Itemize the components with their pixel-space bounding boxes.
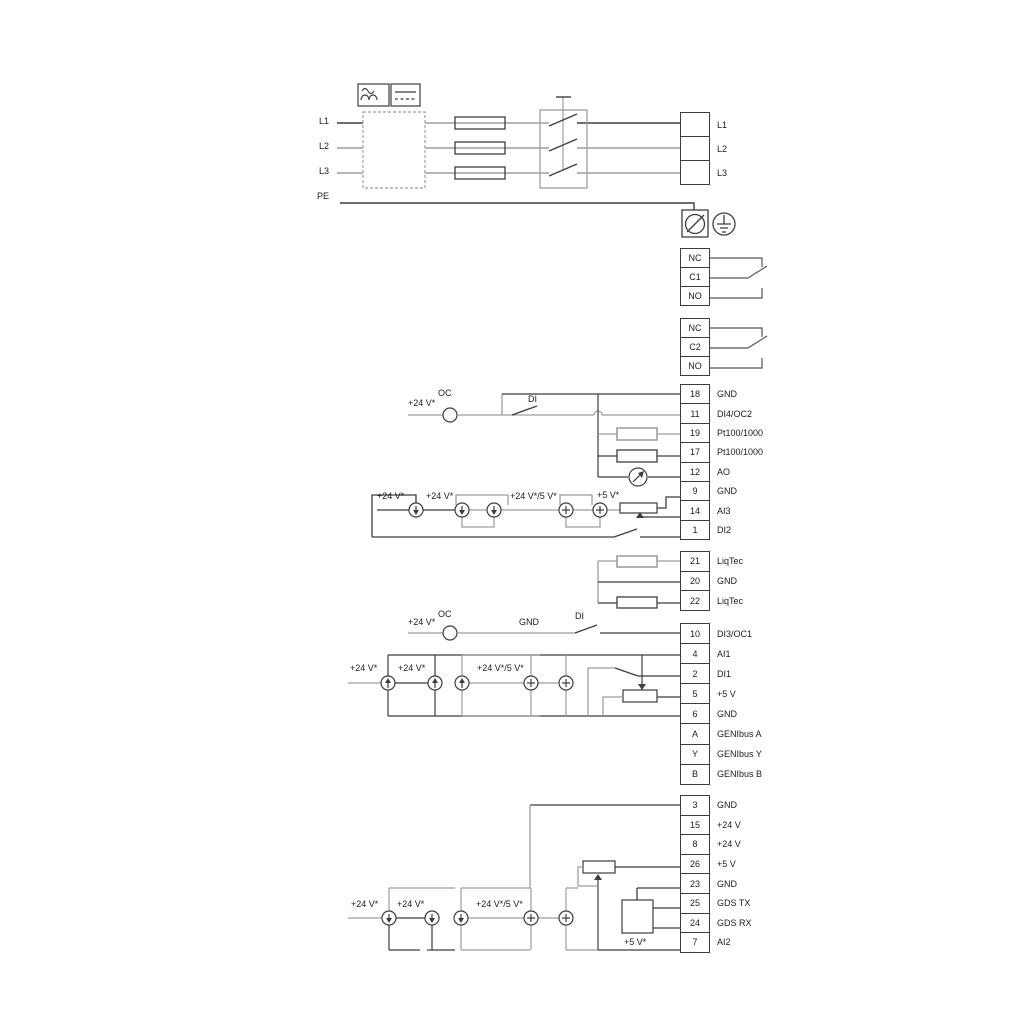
relay2-contact-icon	[710, 328, 767, 368]
di-switch-icon	[575, 625, 597, 633]
wiring-svg	[0, 0, 1024, 1024]
terminal-label: DI2	[717, 525, 731, 535]
meter-needle-tip	[638, 471, 644, 478]
terminal-row: NO	[680, 356, 710, 376]
terminal-label: GENIbus Y	[717, 749, 762, 759]
di-switch-icon	[512, 406, 537, 415]
ai2-source-row	[348, 805, 680, 950]
potentiometer-icon	[583, 861, 615, 873]
terminal-label: LiqTec	[717, 556, 743, 566]
terminal-label: L3	[717, 168, 727, 178]
mains-l1-label: L1	[319, 116, 329, 126]
terminal-row: 12AO	[680, 462, 710, 482]
v24-label: +24 V*	[408, 617, 435, 627]
terminal-label: DI1	[717, 669, 731, 679]
potentiometer-icon	[620, 503, 657, 513]
terminal-row: 10DI3/OC1	[680, 623, 710, 644]
terminal-label: +5 V	[717, 689, 736, 699]
voltage-source-icon	[559, 676, 573, 690]
current-source-down-icon	[409, 503, 423, 517]
terminal-row: L2	[680, 136, 710, 161]
terminal-label: DI3/OC1	[717, 629, 752, 639]
terminal-label: L1	[717, 120, 727, 130]
terminal-row: 23GND	[680, 873, 710, 894]
terminal-row: BGENIbus B	[680, 764, 710, 785]
potentiometer-icon	[623, 690, 657, 702]
terminal-row: YGENIbus Y	[680, 744, 710, 765]
terminal-row: 8+24 V	[680, 834, 710, 855]
ac-symbol-icon	[358, 84, 389, 106]
current-source-down-icon	[455, 503, 469, 517]
terminal-row: 15+24 V	[680, 815, 710, 836]
pe-terminal-icon	[682, 210, 708, 237]
terminal-label: L2	[717, 144, 727, 154]
di2-switch-icon	[614, 529, 637, 537]
source-symbols	[381, 503, 607, 925]
pt100-circuit	[598, 428, 680, 462]
terminal-row: 2DI1	[680, 663, 710, 684]
gnd-label: GND	[519, 617, 539, 627]
terminal-row: 11DI4/OC2	[680, 403, 710, 423]
terminal-row: 21LiqTec	[680, 551, 710, 572]
v24-label: +24 V*	[350, 663, 377, 673]
terminal-row: 14AI3	[680, 500, 710, 520]
terminal-row: 3GND	[680, 795, 710, 816]
terminal-label: GND	[717, 800, 737, 810]
terminal-label: DI4/OC2	[717, 409, 752, 419]
terminal-strip-io-top: 18GND11DI4/OC219Pt100/100017Pt100/100012…	[680, 384, 710, 540]
terminal-row: NC	[680, 318, 710, 338]
v24-label: +24 V*	[398, 663, 425, 673]
terminal-label: GDS TX	[717, 898, 750, 908]
di-label: DI	[528, 394, 537, 404]
terminal-row: 5+5 V	[680, 683, 710, 704]
terminal-strip-io-mid: 10DI3/OC14AI12DI15+5 V6GNDAGENIbus AYGEN…	[680, 623, 710, 785]
resistor-icon	[617, 597, 657, 608]
terminal-label: GDS RX	[717, 918, 752, 928]
open-collector-icon	[443, 408, 457, 422]
terminal-row: NO	[680, 286, 710, 306]
terminal-strip-io-bottom: 3GND15+24 V8+24 V26+5 V23GND25GDS TX24GD…	[680, 795, 710, 953]
terminal-label: LiqTec	[717, 596, 743, 606]
di4-oc2-circuit	[408, 394, 680, 477]
terminal-row: NC	[680, 248, 710, 268]
terminal-label: AI2	[717, 937, 731, 947]
terminal-label: +24 V	[717, 839, 741, 849]
terminal-label: GENIbus B	[717, 769, 762, 779]
terminal-strip-relay1: NCC1NO	[680, 248, 710, 306]
mains-pe-label: PE	[317, 191, 329, 201]
terminal-row: 17Pt100/1000	[680, 442, 710, 462]
current-source-down-icon	[425, 911, 439, 925]
v24-5v-label: +24 V*/5 V*	[476, 899, 523, 909]
current-source-down-icon	[382, 911, 396, 925]
filter-box-icon	[363, 112, 425, 188]
v24-label: +24 V*	[351, 899, 378, 909]
current-source-down-icon	[454, 911, 468, 925]
terminal-row: 25GDS TX	[680, 893, 710, 914]
terminal-row: 7AI2	[680, 932, 710, 953]
voltage-source-icon	[559, 503, 573, 517]
voltage-source-icon	[524, 676, 538, 690]
terminal-strip-relay2: NCC2NO	[680, 318, 710, 376]
pe-wire	[340, 203, 694, 210]
liqtec-circuit	[598, 556, 680, 608]
terminal-strip-liqtec: 21LiqTec20GND22LiqTec	[680, 551, 710, 611]
terminal-row: 1DI2	[680, 520, 710, 540]
terminal-row: 24GDS RX	[680, 913, 710, 934]
current-source-up-icon	[381, 676, 395, 690]
current-source-up-icon	[455, 676, 469, 690]
mains-l2-label: L2	[319, 141, 329, 151]
terminal-label: GND	[717, 709, 737, 719]
terminal-row: 9GND	[680, 481, 710, 501]
voltage-source-icon	[524, 911, 538, 925]
terminal-row: 19Pt100/1000	[680, 423, 710, 443]
relay1-contact-icon	[710, 258, 767, 298]
terminal-label: GND	[717, 486, 737, 496]
terminal-row: C2	[680, 337, 710, 357]
di1-switch-icon	[615, 668, 638, 676]
terminal-row: L1	[680, 112, 710, 137]
v24-label: +24 V*	[426, 491, 453, 501]
v24-label: +24 V*	[397, 899, 424, 909]
terminal-label: +24 V	[717, 820, 741, 830]
resistor-icon	[617, 556, 657, 567]
terminal-label: GND	[717, 879, 737, 889]
terminal-label: AI3	[717, 506, 731, 516]
current-source-up-icon	[428, 676, 442, 690]
v24-label: +24 V*	[377, 491, 404, 501]
wiper-arrow-icon	[594, 874, 602, 880]
di-label: DI	[575, 611, 584, 621]
oc-label: OC	[438, 609, 452, 619]
gds-sensor-icon	[622, 900, 653, 933]
resistor-icon	[617, 450, 657, 462]
terminal-row: 26+5 V	[680, 854, 710, 875]
wiring-diagram: L1 L2 L3 PE +24 V* OC DI +24 V* +24 V* +…	[0, 0, 1024, 1024]
terminal-label: +5 V	[717, 859, 736, 869]
v5-label: +5 V*	[597, 490, 619, 500]
terminal-strip-power-out: L1L2L3	[680, 112, 710, 185]
terminal-row: 6GND	[680, 703, 710, 724]
di3-oc1-circuit	[408, 625, 680, 640]
voltage-source-icon	[593, 503, 607, 517]
oc-label: OC	[438, 388, 452, 398]
main-switch-icon	[540, 97, 587, 188]
resistor-icon	[617, 428, 657, 440]
open-collector-icon	[443, 626, 457, 640]
v24-5v-label: +24 V*/5 V*	[477, 663, 524, 673]
ao-circuit	[598, 468, 680, 486]
v5-label: +5 V*	[624, 937, 646, 947]
mains-l3-label: L3	[319, 166, 329, 176]
v24-label: +24 V*	[408, 398, 435, 408]
terminal-row: C1	[680, 267, 710, 287]
terminal-row: 18GND	[680, 384, 710, 404]
terminal-label: Pt100/1000	[717, 428, 763, 438]
earth-icon	[713, 213, 735, 235]
dc-symbol-icon	[391, 84, 420, 106]
terminal-row: 20GND	[680, 571, 710, 592]
terminal-label: Pt100/1000	[717, 447, 763, 457]
mains-wires	[337, 123, 680, 173]
voltage-source-icon	[559, 911, 573, 925]
terminal-row: L3	[680, 160, 710, 185]
v24-5v-label: +24 V*/5 V*	[510, 491, 557, 501]
terminal-label: GND	[717, 576, 737, 586]
terminal-label: GENIbus A	[717, 729, 762, 739]
current-source-down-icon	[487, 503, 501, 517]
wiper-arrow-icon	[638, 684, 646, 690]
terminal-label: AI1	[717, 649, 731, 659]
terminal-label: GND	[717, 389, 737, 399]
terminal-row: AGENIbus A	[680, 723, 710, 744]
terminal-row: 4AI1	[680, 643, 710, 664]
terminal-row: 22LiqTec	[680, 590, 710, 611]
terminal-label: AO	[717, 467, 730, 477]
